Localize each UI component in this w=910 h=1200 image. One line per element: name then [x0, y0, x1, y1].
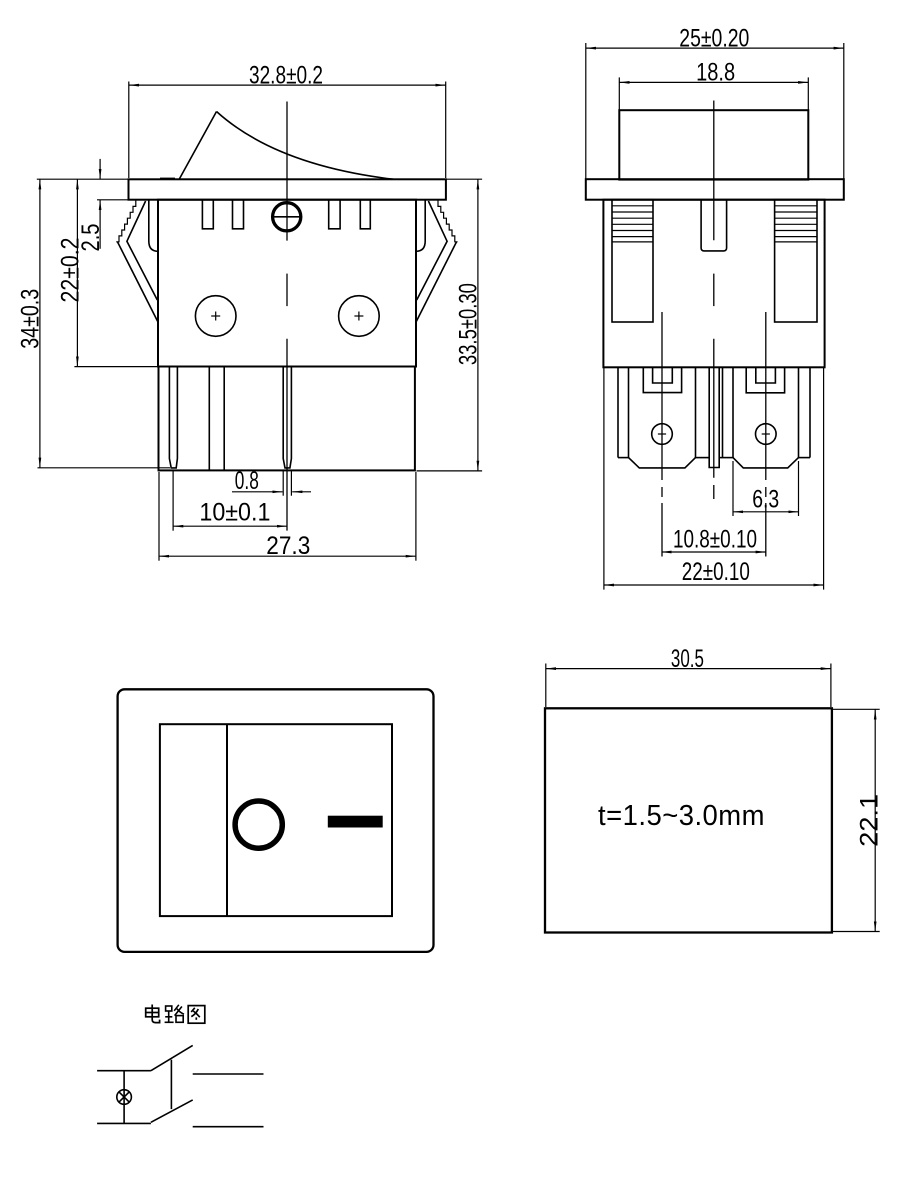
- svg-text:27.3: 27.3: [266, 532, 310, 560]
- svg-text:2.5: 2.5: [77, 224, 105, 252]
- svg-text:0.8: 0.8: [235, 467, 259, 495]
- svg-text:22±0.10: 22±0.10: [682, 558, 750, 586]
- svg-text:30.5: 30.5: [671, 645, 704, 673]
- svg-text:18.8: 18.8: [696, 59, 735, 87]
- svg-text:t=1.5~3.0mm: t=1.5~3.0mm: [598, 800, 765, 832]
- svg-text:10±0.1: 10±0.1: [199, 499, 270, 527]
- svg-text:33.5±0.30: 33.5±0.30: [454, 283, 482, 365]
- svg-text:6.3: 6.3: [752, 486, 779, 514]
- svg-text:34±0.3: 34±0.3: [17, 289, 45, 349]
- svg-text:32.8±0.2: 32.8±0.2: [249, 62, 323, 90]
- svg-text:25±0.20: 25±0.20: [679, 24, 749, 52]
- svg-text:10.8±0.10: 10.8±0.10: [673, 526, 757, 554]
- svg-text:22.1: 22.1: [856, 794, 884, 847]
